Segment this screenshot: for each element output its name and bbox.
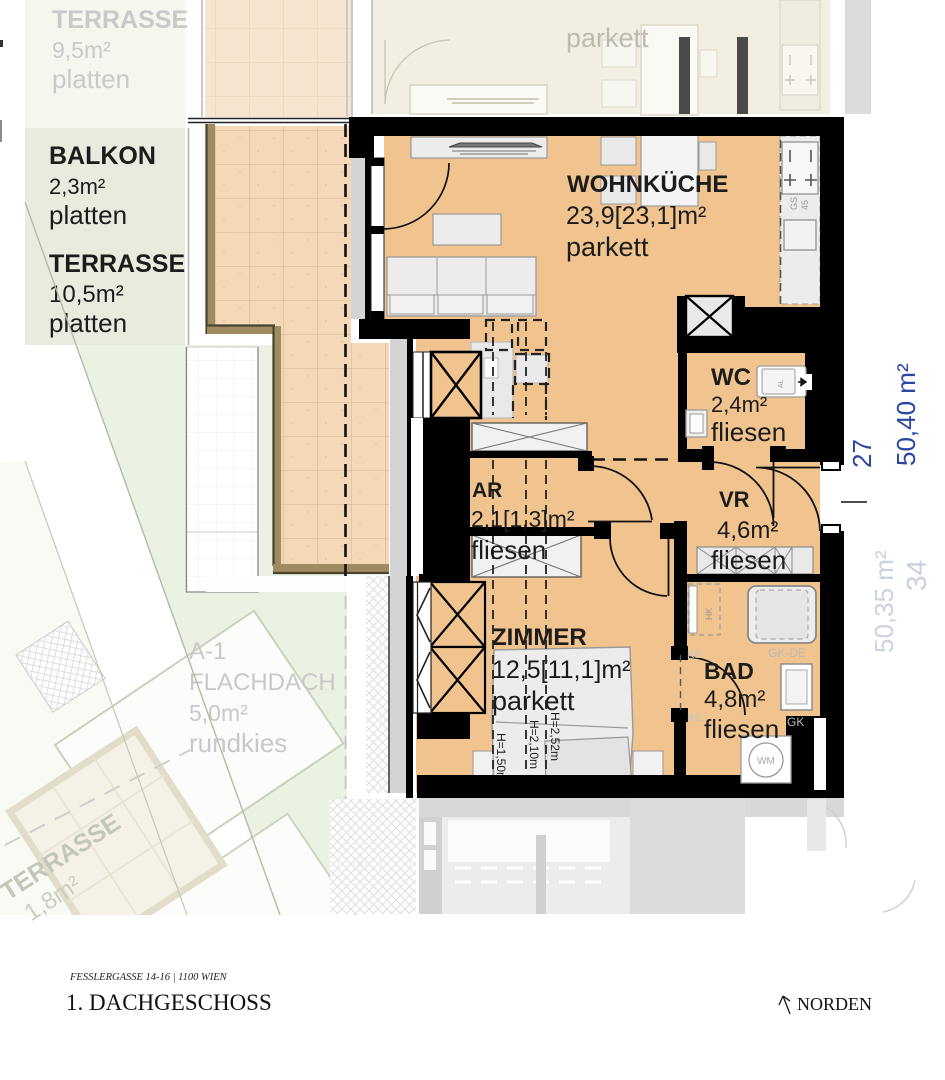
svg-text:AR: AR	[472, 479, 502, 502]
svg-text:FESSLERGASSE 14-16 | 1100 WIEN: FESSLERGASSE 14-16 | 1100 WIEN	[69, 972, 228, 983]
svg-text:fliesen: fliesen	[471, 535, 546, 565]
svg-text:WM: WM	[757, 756, 775, 767]
svg-text:ZIMMER: ZIMMER	[492, 624, 587, 651]
svg-text:platten: platten	[49, 200, 127, 230]
svg-text:A-1: A-1	[189, 638, 226, 665]
svg-text:GS: GS	[789, 197, 799, 210]
svg-text:VR: VR	[719, 487, 750, 512]
svg-text:4,6m²: 4,6m²	[717, 517, 778, 544]
svg-text:HK: HK	[704, 607, 714, 620]
svg-text:45: 45	[800, 200, 810, 210]
svg-text:GK: GK	[787, 715, 804, 729]
svg-text:fliesen: fliesen	[711, 545, 786, 575]
svg-text:H=2,10m: H=2,10m	[527, 720, 541, 769]
svg-text:2,3m²: 2,3m²	[49, 174, 105, 199]
svg-text:5,0m²: 5,0m²	[189, 700, 248, 726]
svg-text:WOHNKÜCHE: WOHNKÜCHE	[567, 171, 728, 198]
svg-text:platten: platten	[52, 64, 130, 94]
svg-text:fliesen: fliesen	[704, 714, 779, 744]
svg-text:BALKON: BALKON	[49, 142, 156, 170]
svg-text:50,35 m²: 50,35 m²	[869, 550, 899, 653]
svg-text:TERRASSE: TERRASSE	[52, 6, 188, 34]
svg-text:fliesen: fliesen	[711, 417, 786, 447]
svg-text:H=1,50m: H=1,50m	[494, 733, 508, 782]
svg-text:TERRASSE: TERRASSE	[49, 250, 185, 278]
svg-text:AL: AL	[778, 379, 785, 388]
svg-text:50,40 m²: 50,40 m²	[891, 363, 921, 466]
svg-text:23,9[23,1]m²: 23,9[23,1]m²	[566, 202, 706, 230]
svg-text:parkett: parkett	[566, 23, 649, 53]
svg-text:KE: KE	[687, 712, 702, 724]
svg-text:H=2,52m: H=2,52m	[548, 712, 562, 761]
svg-text:2,1[1,3]m²: 2,1[1,3]m²	[471, 506, 575, 532]
svg-text:NORDEN: NORDEN	[797, 994, 872, 1014]
svg-text:27: 27	[847, 439, 877, 468]
svg-text:4,8m²: 4,8m²	[704, 686, 765, 713]
svg-text:9,5m²: 9,5m²	[52, 37, 111, 63]
svg-text:rundkies: rundkies	[189, 728, 287, 758]
svg-text:34: 34	[901, 560, 932, 591]
svg-text:1. DACHGESCHOSS: 1. DACHGESCHOSS	[66, 990, 272, 1015]
svg-text:2,4m²: 2,4m²	[711, 392, 767, 417]
svg-text:GK-DE: GK-DE	[768, 646, 806, 660]
svg-text:BAD: BAD	[704, 658, 754, 684]
svg-text:KE: KE	[687, 649, 702, 661]
svg-text:FLACHDACH: FLACHDACH	[189, 669, 336, 696]
svg-text:parkett: parkett	[492, 686, 575, 716]
svg-text:WC: WC	[711, 364, 751, 391]
svg-text:12,5[11,1]m²: 12,5[11,1]m²	[492, 656, 631, 684]
svg-text:parkett: parkett	[566, 232, 649, 262]
svg-text:10,5m²: 10,5m²	[49, 281, 124, 308]
svg-text:platten: platten	[49, 308, 127, 338]
